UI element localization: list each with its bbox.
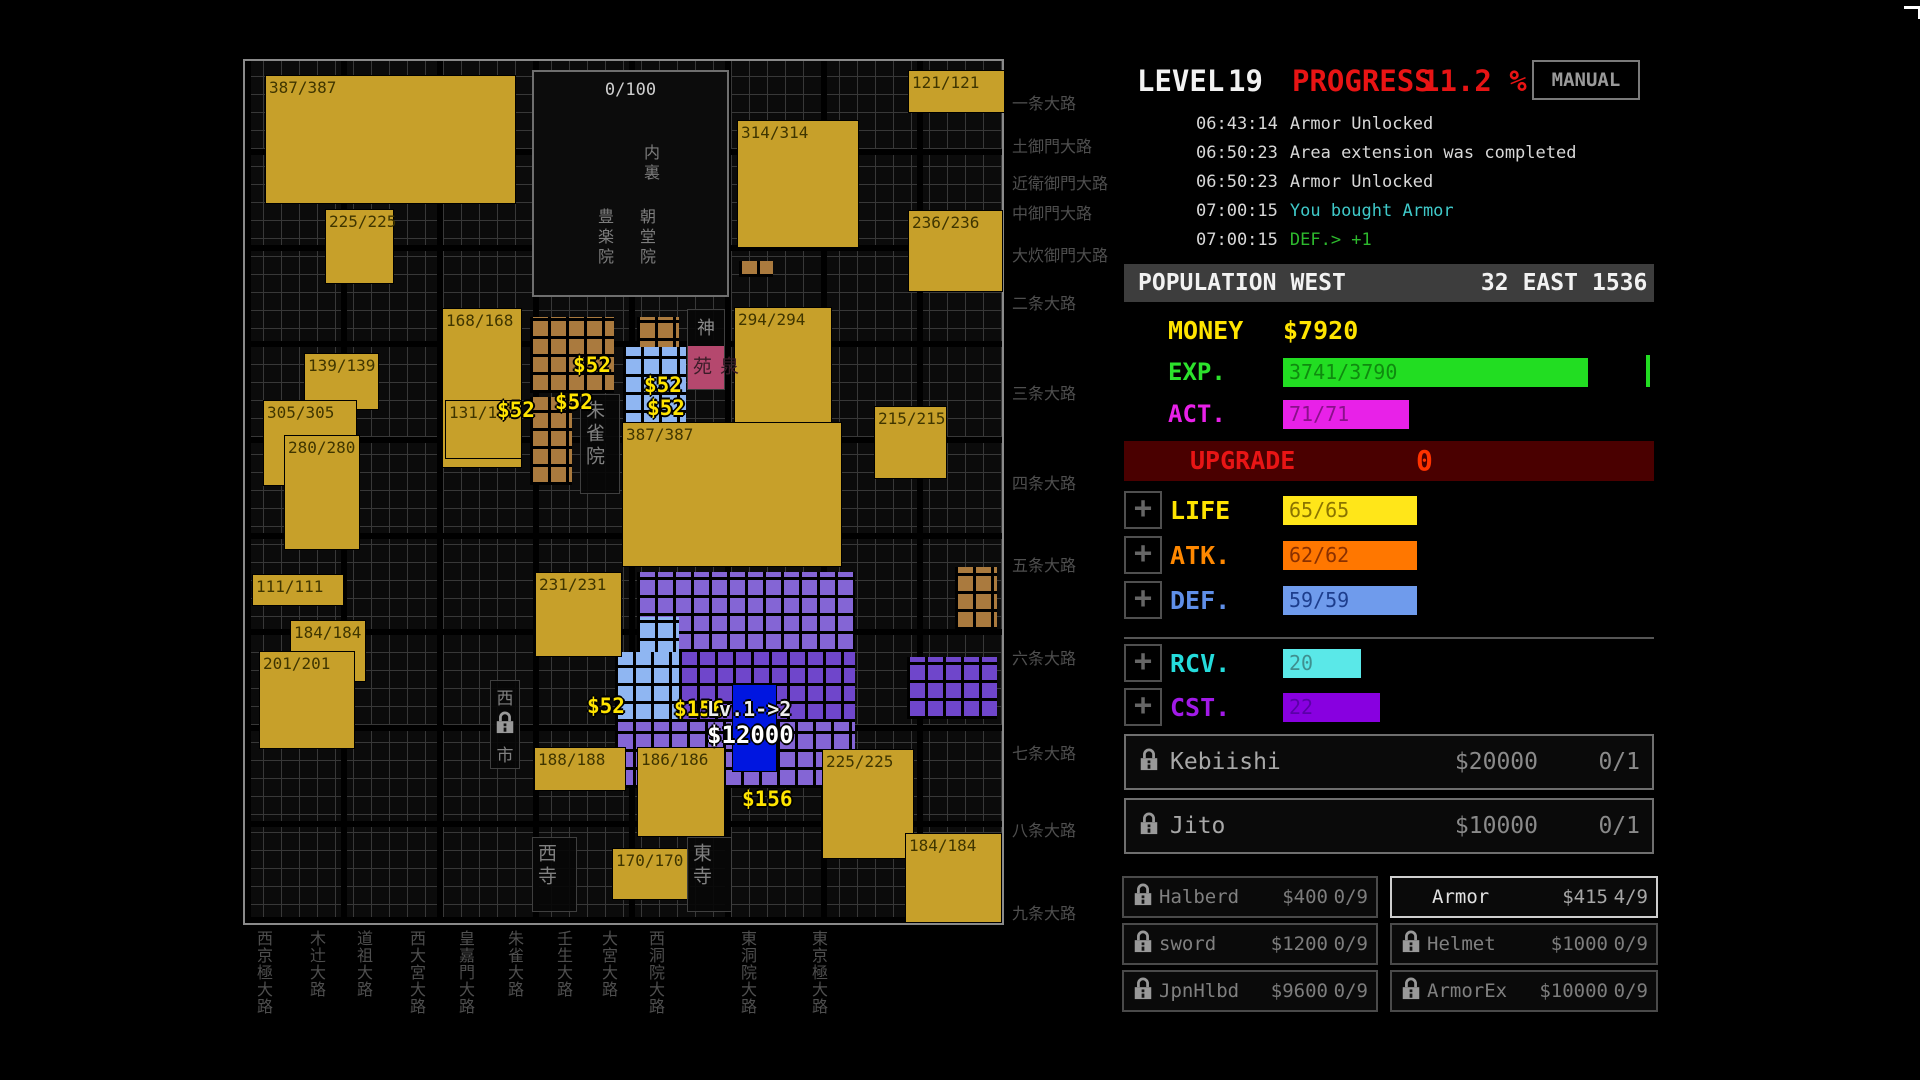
exp-label: EXP. (1168, 358, 1226, 386)
recruit-jito[interactable]: Jito$100000/1 (1124, 798, 1654, 854)
increase-def-button[interactable]: + (1124, 581, 1162, 619)
log-entry: 07:00:15DEF.> +1 (1196, 226, 1576, 255)
stat-divider (1124, 637, 1654, 639)
population-east-label: EAST (1523, 270, 1578, 296)
population-west-value: 32 (1481, 270, 1509, 296)
population-west-label: WEST (1290, 270, 1345, 296)
recruit-name: Kebiishi (1170, 749, 1281, 775)
shop-item-name: Halberd (1159, 886, 1239, 908)
rcv-label: RCV. (1170, 649, 1230, 678)
log-entry: 06:43:14Armor Unlocked (1196, 110, 1576, 139)
cst-value: 22 (1283, 695, 1313, 719)
shop-item-price: $10000 (1539, 980, 1608, 1002)
shop-item-armor[interactable]: Armor$4154/9 (1390, 876, 1658, 918)
log-time: 07:00:15 (1196, 201, 1278, 221)
log-message: Area extension was completed (1290, 143, 1577, 163)
shop-item-count: 0/9 (1608, 933, 1648, 955)
log-time: 07:00:15 (1196, 230, 1278, 250)
log-message: DEF.> +1 (1290, 230, 1372, 250)
corner-mark (1904, 6, 1920, 19)
lock-icon (1400, 930, 1422, 958)
level-value: 19 (1228, 64, 1263, 98)
increase-life-button[interactable]: + (1124, 491, 1162, 529)
progress-value: 11.2 % (1422, 64, 1527, 98)
log-time: 06:50:23 (1196, 172, 1278, 192)
shop-item-count: 4/9 (1608, 886, 1648, 908)
cst-bar: 22 (1283, 693, 1380, 722)
recruit-price: $20000 (1455, 749, 1538, 775)
recruit-kebiishi[interactable]: Kebiishi$200000/1 (1124, 734, 1654, 790)
atk-label: ATK. (1170, 541, 1230, 570)
lock-icon (1400, 977, 1422, 1005)
lock-icon (1132, 930, 1154, 958)
shop-item-price: $415 (1562, 886, 1608, 908)
shop-item-price: $1000 (1551, 933, 1608, 955)
level-label: LEVEL (1137, 64, 1224, 98)
shop-item-count: 0/9 (1328, 886, 1368, 908)
shop-item-name: sword (1159, 933, 1216, 955)
shop-item-name: Armor (1432, 886, 1489, 908)
lock-icon (1132, 883, 1154, 911)
log-message: Armor Unlocked (1290, 172, 1433, 192)
def-label: DEF. (1170, 586, 1230, 615)
def-bar: 59/59 (1283, 586, 1417, 615)
population-east-value: 1536 (1592, 270, 1647, 296)
shop-item-count: 0/9 (1608, 980, 1648, 1002)
cst-label: CST. (1170, 693, 1230, 722)
manual-button-label: MANUAL (1552, 69, 1621, 91)
exp-tick-marker (1646, 355, 1650, 387)
log-time: 06:50:23 (1196, 143, 1278, 163)
log-entry: 06:50:23Area extension was completed (1196, 139, 1576, 168)
recruit-price: $10000 (1455, 813, 1538, 839)
shop-item-price: $9600 (1271, 980, 1328, 1002)
recruit-count: 0/1 (1584, 813, 1640, 839)
def-value: 59/59 (1283, 588, 1349, 612)
shop-item-halberd[interactable]: Halberd$4000/9 (1122, 876, 1378, 918)
log-entry: 06:50:23Armor Unlocked (1196, 168, 1576, 197)
shop-item-jpnhlbd[interactable]: JpnHlbd$96000/9 (1122, 970, 1378, 1012)
act-bar: 71/71 (1283, 400, 1409, 429)
increase-atk-button[interactable]: + (1124, 536, 1162, 574)
population-bar: POPULATION WEST 32EAST 1536 (1124, 264, 1654, 302)
act-value: 71/71 (1283, 402, 1349, 426)
shop-item-helmet[interactable]: Helmet$10000/9 (1390, 923, 1658, 965)
exp-bar: 3741/3790 (1283, 358, 1588, 387)
side-panel: LEVEL 19 PROGRESS 11.2 % MANUAL 06:43:14… (0, 0, 1920, 1080)
rcv-bar: 20 (1283, 649, 1361, 678)
shop-item-armorex[interactable]: ArmorEx$100000/9 (1390, 970, 1658, 1012)
rcv-value: 20 (1283, 651, 1313, 675)
shop-item-count: 0/9 (1328, 933, 1368, 955)
lock-icon (1138, 812, 1160, 840)
shop-item-price: $400 (1282, 886, 1328, 908)
increase-cst-button[interactable]: + (1124, 688, 1162, 726)
shop-item-name: Helmet (1427, 933, 1496, 955)
event-log: 06:43:14Armor Unlocked06:50:23Area exten… (1196, 110, 1576, 255)
exp-value: 3741/3790 (1283, 360, 1397, 384)
recruit-name: Jito (1170, 813, 1225, 839)
life-label: LIFE (1170, 496, 1230, 525)
progress-label: PROGRESS (1292, 64, 1432, 98)
shop-item-sword[interactable]: sword$12000/9 (1122, 923, 1378, 965)
shop-item-count: 0/9 (1328, 980, 1368, 1002)
upgrade-cost-label: $12000 (707, 721, 794, 749)
population-label: POPULATION (1138, 270, 1276, 296)
life-value: 65/65 (1283, 498, 1349, 522)
upgrade-level-label: Lv.1->2 (707, 697, 794, 721)
manual-button[interactable]: MANUAL (1532, 60, 1640, 100)
log-time: 06:43:14 (1196, 114, 1278, 134)
atk-bar: 62/62 (1283, 541, 1417, 570)
increase-rcv-button[interactable]: + (1124, 644, 1162, 682)
log-message: Armor Unlocked (1290, 114, 1433, 134)
act-label: ACT. (1168, 400, 1226, 428)
log-message: You bought Armor (1290, 201, 1454, 221)
upgrade-label: UPGRADE (1190, 446, 1295, 475)
shop-item-price: $1200 (1271, 933, 1328, 955)
upgrade-count: 0 (1416, 444, 1433, 477)
lock-icon (1132, 977, 1154, 1005)
life-bar: 65/65 (1283, 496, 1417, 525)
money-label: MONEY (1168, 316, 1243, 345)
shop-item-name: JpnHlbd (1159, 980, 1239, 1002)
money-value: $7920 (1283, 316, 1358, 345)
shop-item-name: ArmorEx (1427, 980, 1507, 1002)
upgrade-price-tag: Lv.1->2$12000 (707, 697, 794, 749)
upgrade-button[interactable]: UPGRADE 0 (1124, 441, 1654, 481)
log-entry: 07:00:15You bought Armor (1196, 197, 1576, 226)
lock-icon (1138, 748, 1160, 776)
game-screen: 387/387225/225121/121314/314236/236168/1… (0, 0, 1920, 1080)
recruit-count: 0/1 (1584, 749, 1640, 775)
atk-value: 62/62 (1283, 543, 1349, 567)
